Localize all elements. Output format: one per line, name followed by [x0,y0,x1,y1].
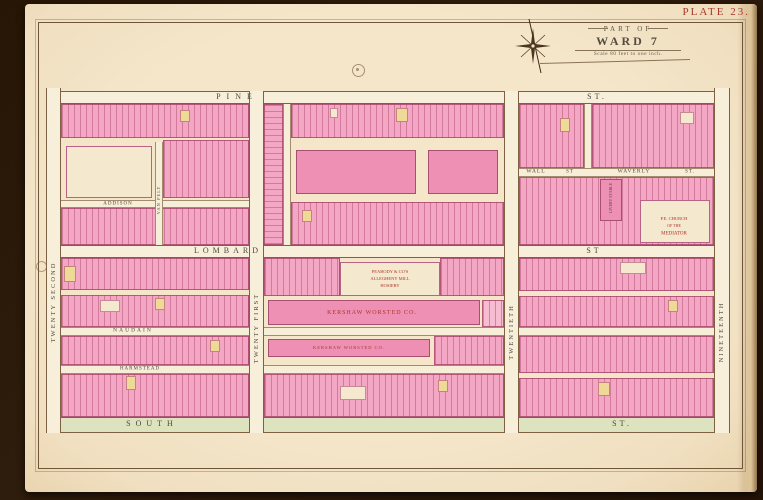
title-flourish-line [540,59,690,64]
atlas-photo-background: PINEST.LOMBARDSTSOUTHST.NAUDAINHARMSTEAD… [0,0,763,500]
street-label-harmstead: HARMSTEAD [120,367,160,372]
title-ward: WARD 7 [568,34,688,49]
church-of-the-mediator-building [640,200,710,243]
plate-number-label: PLATE 23. [620,7,750,18]
street-label-twenty-first: TWENTY FIRST [254,293,261,364]
building-label-livery-stable: LIVERY STABLE [609,183,613,213]
city-block-lots [519,104,584,168]
frame-building-lot [126,376,136,390]
street-twentieth [504,91,519,433]
city-block-lots [519,258,714,291]
street-label-twenty-second: TWENTY SECOND [51,262,58,343]
map-title-block: PART OF WARD 7 Scale 80 feet to one inch… [568,25,688,57]
frame-building-lot [64,266,76,282]
street-label-lombard: LOMBARD [194,247,262,255]
city-block-lots [61,104,249,138]
street-label-waverly-st: ST. [685,170,695,175]
frame-building-lot [302,210,312,222]
frame-building-lot [598,382,610,396]
title-flourish-line [648,28,668,29]
building-label-hosiery-3: HOSIERY [380,284,399,289]
frame-building-lot [438,380,448,392]
city-block-lots [264,258,340,296]
yard-patch [620,262,646,274]
frame-building-lot [210,340,220,352]
street-label-south-st: ST. [612,420,632,428]
title-flourish-line [575,50,681,51]
building-label-kershaw-long: KERSHAW WORSTED CO. [313,346,385,351]
building-label-kershaw-main: KERSHAW WORSTED CO. [327,310,417,316]
street-label-pine: PINE [216,93,258,101]
frame-building-lot [180,110,190,122]
building-label-church-2: OF THE [667,224,681,228]
city-block-lots [264,374,504,417]
building-label-church-3: MEDIATOR [661,232,687,237]
yard-patch [680,112,694,124]
frame-building-lot [668,300,678,312]
atlas-page: PINEST.LOMBARDSTSOUTHST.NAUDAINHARMSTEAD… [25,4,757,492]
yard-patch [100,300,120,312]
margin-stamp-icon [36,261,47,272]
mill-building [296,150,416,194]
title-scale-note: Scale 80 feet to one inch. [568,51,688,57]
street-nineteenth [714,88,730,433]
street-lombard [46,245,730,258]
street-label-south: SOUTH [126,420,178,428]
city-block-lots [264,104,283,245]
city-block-lots [291,202,504,245]
mill-building [428,150,498,194]
street-label-naudain: NAUDAIN [113,328,153,334]
building-label-church-1: P.E. CHURCH [661,217,688,222]
street-twenty-second [46,88,61,433]
street-label-addison: ADDISON [103,202,133,207]
street-label-lombard-st: ST [586,247,601,255]
city-block-lots [519,378,714,417]
street-naudain [61,327,714,336]
building-label-hosiery-1: PEABODY & CO'S [372,270,408,275]
title-part-of: PART OF [568,25,688,33]
compass-rose-icon [505,18,561,74]
street-label-twentieth: TWENTIETH [509,304,516,360]
map-layer: PINEST.LOMBARDSTSOUTHST.NAUDAINHARMSTEAD… [0,0,763,500]
street-central-lane [283,104,291,245]
street-twenty-first [249,91,264,433]
frame-building-lot [560,118,570,132]
street-label-pine-st: ST. [587,93,607,101]
yard-patch [330,108,338,118]
institution-building [66,146,152,198]
yard-patch [340,386,366,400]
city-block-lots [519,336,714,373]
surveyor-stamp-icon [352,64,365,77]
street-label-wall: WALL [526,169,545,175]
city-block-lots [163,140,249,198]
city-block-lots [61,258,249,290]
building-label-hosiery-2: ALLEGHENY MILL [370,277,409,282]
street-label-nineteenth: NINETEENTH [719,302,726,363]
frame-building-lot [396,108,408,122]
street-upper-right-lane [584,104,592,168]
city-block-lots [592,104,714,168]
city-block-lots [61,374,249,417]
frame-building-lot [155,298,165,310]
title-flourish-line [588,28,608,29]
street-label-waverly: WAVERLY [618,169,651,175]
street-label-wall-st: ST [566,170,574,175]
city-block-lots [440,258,504,296]
city-block-lots [434,336,504,365]
city-block-lots [482,300,504,327]
street-pine [46,91,730,104]
city-block-lots [519,296,714,327]
street-label-van-pelt: VAN PELT [157,186,162,215]
city-block-lots [61,336,249,365]
